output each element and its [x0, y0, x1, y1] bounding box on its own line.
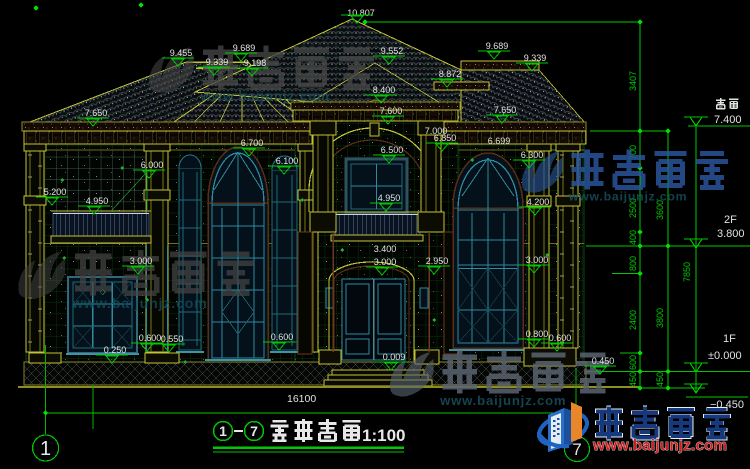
svg-text:0.600: 0.600: [549, 333, 572, 343]
svg-text:7: 7: [572, 440, 581, 459]
svg-text:800: 800: [628, 256, 638, 271]
svg-text:3.400: 3.400: [374, 244, 397, 254]
svg-text:600: 600: [628, 355, 638, 370]
svg-text:9.689: 9.689: [233, 43, 256, 53]
svg-text:16100: 16100: [287, 393, 316, 405]
svg-text:1: 1: [40, 438, 51, 460]
svg-text:2.950: 2.950: [426, 256, 449, 266]
svg-text:6.700: 6.700: [241, 138, 264, 148]
svg-text:450: 450: [628, 372, 638, 387]
svg-text:3.000: 3.000: [374, 257, 397, 267]
svg-text:9.455: 9.455: [170, 48, 193, 58]
svg-text:3.800: 3.800: [717, 228, 745, 240]
svg-text:2400: 2400: [628, 310, 638, 330]
svg-text:±0.000: ±0.000: [708, 350, 742, 362]
svg-text:450: 450: [655, 372, 665, 387]
svg-text:0.450: 0.450: [592, 356, 615, 366]
svg-text:400: 400: [628, 230, 638, 245]
svg-text:0.600: 0.600: [271, 332, 294, 342]
svg-text:4.950: 4.950: [378, 193, 401, 203]
svg-text:2F: 2F: [724, 214, 737, 226]
svg-text:3.000: 3.000: [526, 255, 549, 265]
svg-text:6.300: 6.300: [521, 150, 544, 160]
svg-text:8.872: 8.872: [439, 69, 462, 79]
svg-text:7.600: 7.600: [380, 106, 403, 116]
svg-text:0.800: 0.800: [526, 329, 549, 339]
svg-text:9.689: 9.689: [486, 41, 509, 51]
svg-text:3.000: 3.000: [130, 256, 153, 266]
svg-text:6.699: 6.699: [488, 136, 511, 146]
svg-text:7.400: 7.400: [714, 114, 742, 126]
svg-text:6.850: 6.850: [434, 133, 457, 143]
svg-text:7.650: 7.650: [85, 108, 108, 118]
svg-text:0.600: 0.600: [139, 333, 162, 343]
svg-text:0.250: 0.250: [104, 345, 127, 355]
svg-text:4.200: 4.200: [527, 197, 550, 207]
svg-text:3800: 3800: [655, 308, 665, 328]
svg-text:9.339: 9.339: [206, 57, 229, 67]
svg-text:6.000: 6.000: [141, 160, 164, 170]
svg-text:5.200: 5.200: [44, 187, 67, 197]
svg-text:7.650: 7.650: [494, 105, 517, 115]
svg-text:0.009: 0.009: [383, 352, 406, 362]
svg-text:9.198: 9.198: [244, 58, 267, 68]
svg-text:7850: 7850: [682, 262, 692, 282]
svg-text:3407: 3407: [628, 71, 638, 91]
svg-text:6.100: 6.100: [276, 156, 299, 166]
svg-text:9.552: 9.552: [381, 46, 404, 56]
svg-text:4.950: 4.950: [86, 196, 109, 206]
svg-text:8.400: 8.400: [373, 85, 396, 95]
svg-text:7: 7: [250, 423, 258, 439]
svg-text:1F: 1F: [723, 333, 736, 345]
svg-text:9.339: 9.339: [524, 53, 547, 63]
svg-text:6.500: 6.500: [381, 145, 404, 155]
svg-text:www.baijunjz.com: www.baijunjz.com: [592, 437, 727, 454]
svg-text:1:100: 1:100: [362, 426, 405, 445]
svg-text:0.550: 0.550: [161, 334, 184, 344]
svg-text:1: 1: [219, 423, 227, 439]
